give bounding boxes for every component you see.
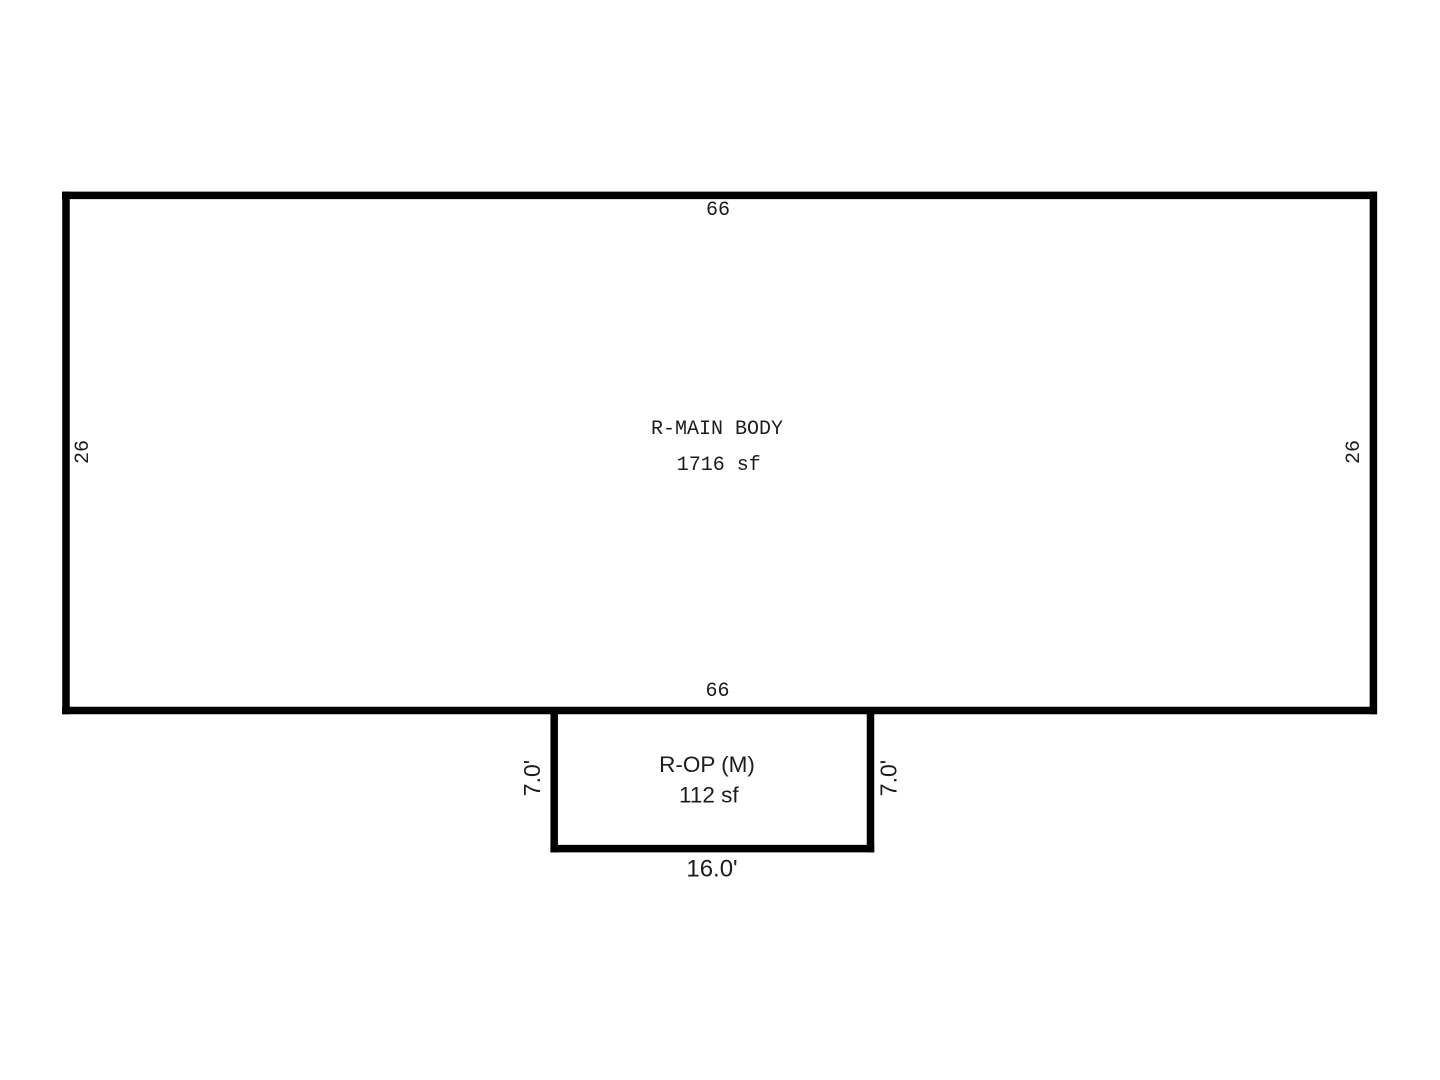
svg-text:26: 26 [72, 440, 95, 464]
svg-text:7.0': 7.0' [519, 760, 545, 796]
svg-text:7.0': 7.0' [875, 760, 901, 796]
svg-text:66: 66 [706, 199, 730, 222]
svg-text:16.0': 16.0' [686, 856, 737, 883]
svg-text:1716 sf: 1716 sf [677, 454, 761, 477]
svg-text:66: 66 [705, 680, 729, 703]
svg-text:R-MAIN BODY: R-MAIN BODY [651, 418, 783, 441]
svg-text:R-OP (M): R-OP (M) [659, 752, 755, 777]
svg-text:26: 26 [1343, 440, 1366, 464]
svg-text:112 sf: 112 sf [679, 783, 739, 808]
